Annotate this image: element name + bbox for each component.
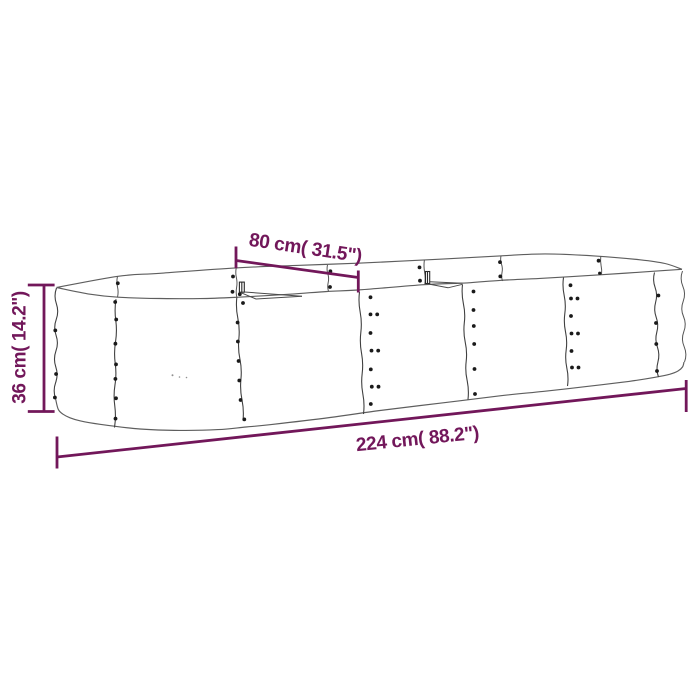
svg-text:36 cm( 14.2"): 36 cm( 14.2") [10, 291, 31, 404]
